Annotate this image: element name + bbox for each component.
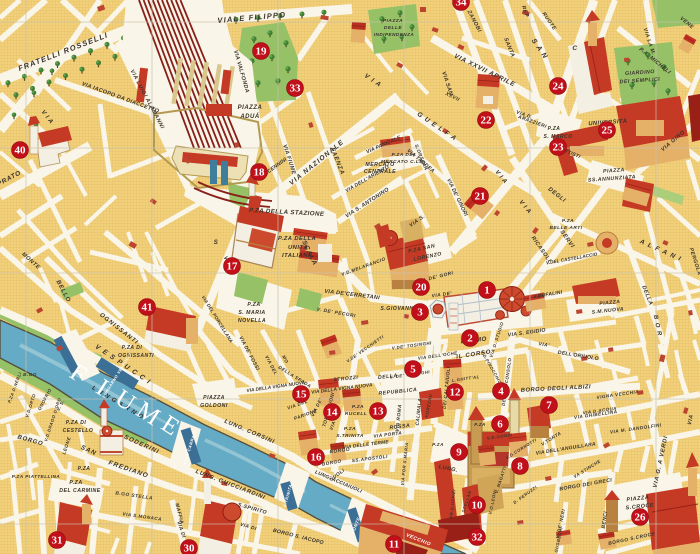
svg-text:CENTRALE: CENTRALE bbox=[364, 169, 396, 175]
svg-text:S: S bbox=[214, 240, 219, 246]
svg-text:S.TRINITA: S.TRINITA bbox=[336, 433, 364, 439]
svg-text:20: 20 bbox=[416, 282, 428, 294]
svg-text:P.ZA DI: P.ZA DI bbox=[122, 345, 143, 351]
svg-text:40: 40 bbox=[15, 145, 27, 157]
svg-text:INDIPENDENZA: INDIPENDENZA bbox=[374, 32, 414, 37]
svg-text:3: 3 bbox=[417, 307, 423, 319]
svg-text:P.ZA: P.ZA bbox=[69, 480, 82, 486]
svg-text:24: 24 bbox=[553, 81, 565, 93]
svg-text:34: 34 bbox=[456, 0, 468, 9]
svg-text:17: 17 bbox=[227, 261, 239, 273]
svg-text:RUCELL: RUCELL bbox=[345, 411, 367, 417]
svg-text:P.ZA: P.ZA bbox=[432, 442, 444, 447]
svg-text:S. MARIA: S. MARIA bbox=[238, 310, 265, 316]
svg-text:P.ZA: P.ZA bbox=[344, 426, 356, 432]
svg-text:1: 1 bbox=[484, 285, 490, 297]
svg-text:P.ZA DEL: P.ZA DEL bbox=[391, 152, 416, 158]
svg-text:DELLE: DELLE bbox=[384, 25, 403, 31]
svg-text:11: 11 bbox=[389, 539, 399, 551]
svg-text:MERCATO: MERCATO bbox=[365, 162, 394, 168]
svg-text:13: 13 bbox=[373, 406, 385, 418]
svg-text:33: 33 bbox=[290, 83, 302, 95]
svg-text:30: 30 bbox=[184, 543, 196, 554]
svg-text:4: 4 bbox=[498, 386, 504, 398]
svg-text:7: 7 bbox=[546, 400, 552, 412]
svg-text:23: 23 bbox=[553, 142, 565, 154]
svg-text:22: 22 bbox=[481, 115, 493, 127]
svg-text:18: 18 bbox=[254, 167, 266, 179]
svg-text:21: 21 bbox=[475, 191, 486, 203]
svg-text:GOLDONI: GOLDONI bbox=[200, 403, 228, 409]
svg-text:32: 32 bbox=[472, 532, 484, 544]
svg-text:C: C bbox=[572, 45, 577, 52]
svg-text:12: 12 bbox=[450, 387, 462, 399]
svg-text:P.ZA DI: P.ZA DI bbox=[66, 420, 87, 426]
svg-text:B.GO: B.GO bbox=[23, 372, 37, 377]
svg-text:25: 25 bbox=[602, 125, 614, 137]
svg-text:DEL CARMINE: DEL CARMINE bbox=[59, 488, 100, 494]
svg-text:10: 10 bbox=[472, 500, 484, 512]
svg-text:41: 41 bbox=[142, 302, 153, 314]
svg-text:P.ZA: P.ZA bbox=[247, 302, 260, 308]
svg-text:P.ZA: P.ZA bbox=[474, 422, 485, 427]
svg-text:2: 2 bbox=[467, 333, 473, 345]
svg-text:UNITÀ: UNITÀ bbox=[288, 244, 308, 251]
svg-text:19: 19 bbox=[256, 46, 268, 58]
svg-text:31: 31 bbox=[52, 535, 63, 547]
svg-text:ITALIANA: ITALIANA bbox=[282, 253, 313, 259]
svg-text:PIAZZA: PIAZZA bbox=[203, 395, 225, 401]
svg-text:BELLE ARTI: BELLE ARTI bbox=[550, 225, 583, 231]
svg-text:14: 14 bbox=[327, 407, 339, 419]
svg-text:P.ZA: P.ZA bbox=[78, 466, 91, 472]
svg-text:CESTELLO: CESTELLO bbox=[63, 428, 94, 434]
svg-text:PIAZZA: PIAZZA bbox=[238, 105, 263, 111]
svg-text:ADUÁ: ADUÁ bbox=[239, 113, 259, 120]
svg-text:PIAZZA: PIAZZA bbox=[383, 18, 403, 24]
svg-text:P.ZA: P.ZA bbox=[562, 218, 574, 224]
svg-text:P.ZA: P.ZA bbox=[352, 404, 364, 410]
svg-text:26: 26 bbox=[635, 512, 647, 524]
svg-text:P.ZA: P.ZA bbox=[548, 126, 561, 132]
svg-text:5: 5 bbox=[410, 364, 416, 376]
svg-text:9: 9 bbox=[456, 447, 462, 459]
svg-text:8: 8 bbox=[517, 461, 523, 473]
svg-text:NOVELLA: NOVELLA bbox=[238, 318, 266, 324]
svg-text:16: 16 bbox=[311, 452, 323, 464]
svg-text:15: 15 bbox=[296, 389, 308, 401]
svg-text:P.ZA PIATTELLINA: P.ZA PIATTELLINA bbox=[12, 474, 61, 479]
svg-text:6: 6 bbox=[497, 419, 503, 431]
svg-text:P.ZA DELLA: P.ZA DELLA bbox=[278, 236, 316, 242]
svg-text:S.GIOVANNI: S.GIOVANNI bbox=[380, 306, 415, 312]
